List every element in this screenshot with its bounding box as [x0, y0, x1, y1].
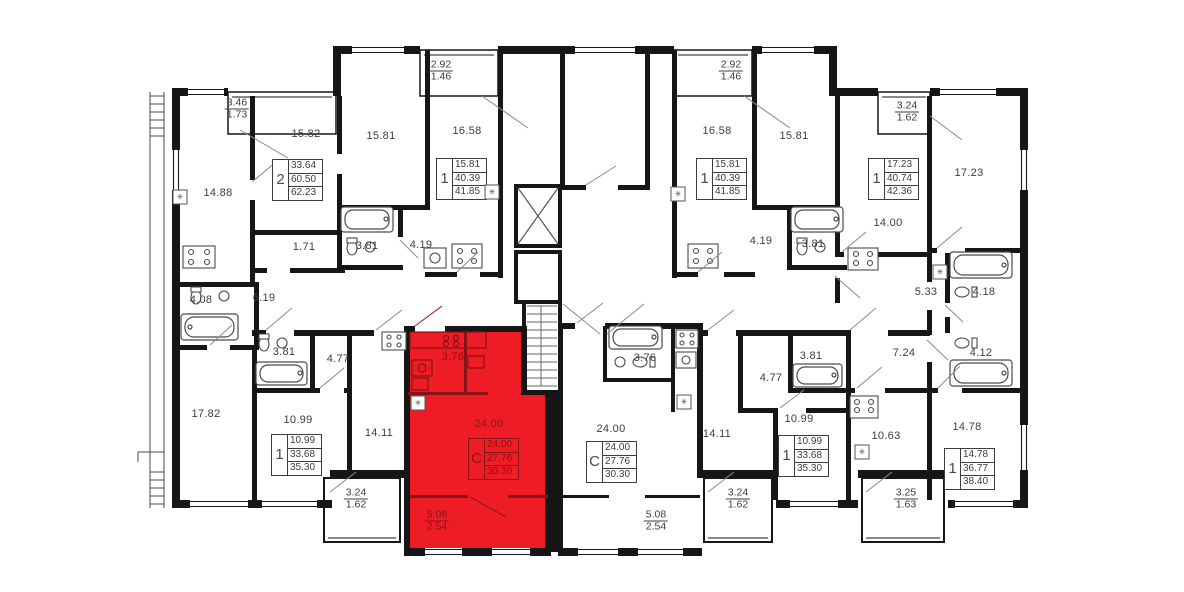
room-area-label: 14.11 [365, 427, 393, 439]
balcony-area-label: 3.241.62 [726, 488, 750, 511]
apartment-info-box: C 24.0027.7630.30 [586, 441, 637, 483]
apartment-info-box: 1 15.8140.3941.85 [436, 158, 487, 200]
balcony-area-label: 3.241.62 [344, 488, 368, 511]
room-area-label: 3.81 [356, 240, 379, 252]
room-area-label: 10.63 [871, 430, 900, 442]
vent-icon: ✳ [671, 187, 686, 202]
room-area-label: 15.81 [779, 130, 808, 142]
room-area-label: 15.82 [291, 128, 320, 140]
room-area-label: 24.00 [474, 418, 503, 430]
apartment-info-box: 2 33.6460.5062.23 [272, 159, 323, 201]
room-area-label: 10.99 [784, 413, 813, 425]
room-area-label: 3.81 [273, 346, 296, 358]
room-area-label: 3.76 [442, 351, 465, 363]
vent-icon: ✳ [173, 190, 188, 205]
apartment-info-box: 1 17.2340.7442.36 [868, 158, 919, 200]
stairwell [527, 306, 557, 386]
room-area-label: 4.77 [760, 372, 783, 384]
room-area-label: 15.81 [366, 130, 395, 142]
room-area-label: 16.58 [452, 125, 481, 137]
room-area-label: 10.99 [283, 414, 312, 426]
room-area-label: 3.76 [634, 352, 657, 364]
vent-icon: ✳ [411, 396, 426, 411]
room-area-label: 4.12 [970, 347, 993, 359]
room-area-label: 14.11 [703, 428, 731, 440]
room-area-label: 3.81 [800, 350, 823, 362]
room-area-label: 4.18 [973, 286, 996, 298]
balcony-area-label: 2.921.46 [719, 60, 743, 83]
room-area-label: 24.00 [596, 423, 625, 435]
vent-icon: ✳ [485, 185, 500, 200]
balcony-area-label: 3.461.73 [225, 98, 249, 121]
room-area-label: 5.33 [915, 286, 938, 298]
vent-icon: ✳ [933, 265, 948, 280]
balcony-area-label: 5.082.54 [425, 510, 449, 533]
apartment-info-box: 1 10.9933.6835.30 [271, 434, 322, 476]
room-area-label: 17.82 [191, 408, 220, 420]
room-area-label: 4.08 [190, 294, 213, 306]
floorplan-page: 14.88 15.82 15.81 16.58 16.58 15.81 14.0… [0, 0, 1184, 592]
balcony-area-label: 3.241.62 [895, 101, 919, 124]
room-area-label: 14.00 [873, 217, 902, 229]
room-area-label: 7.24 [893, 347, 916, 359]
floorplan-drawing [0, 0, 1184, 592]
balcony-area-label: 2.921.46 [429, 60, 453, 83]
vent-icon: ✳ [677, 395, 692, 410]
room-area-label: 4.77 [327, 353, 350, 365]
apartment-info-box: 1 10.9933.6835.30 [778, 435, 829, 477]
room-area-label: 4.19 [410, 239, 433, 251]
room-area-label: 14.78 [952, 421, 981, 433]
room-area-label: 16.58 [702, 125, 731, 137]
room-area-label: 3.81 [802, 238, 825, 250]
room-area-label: 17.23 [954, 167, 983, 179]
elevator-shaft [516, 186, 560, 302]
room-area-label: 1.71 [293, 241, 316, 253]
apartment-info-box: 1 14.7836.7738.40 [944, 448, 995, 490]
room-area-label: 4.19 [750, 235, 773, 247]
apartment-info-box: 1 15.8140.3941.85 [696, 158, 747, 200]
room-area-label: 14.88 [203, 187, 232, 199]
balcony-area-label: 5.082.54 [644, 510, 668, 533]
room-area-label: 6.19 [253, 292, 276, 304]
vent-icon: ✳ [855, 445, 870, 460]
balcony-area-label: 3.251.63 [894, 488, 918, 511]
exterior-ladder [138, 92, 164, 508]
apartment-info-box-selected: C 24.0027.7630.30 [468, 438, 519, 480]
